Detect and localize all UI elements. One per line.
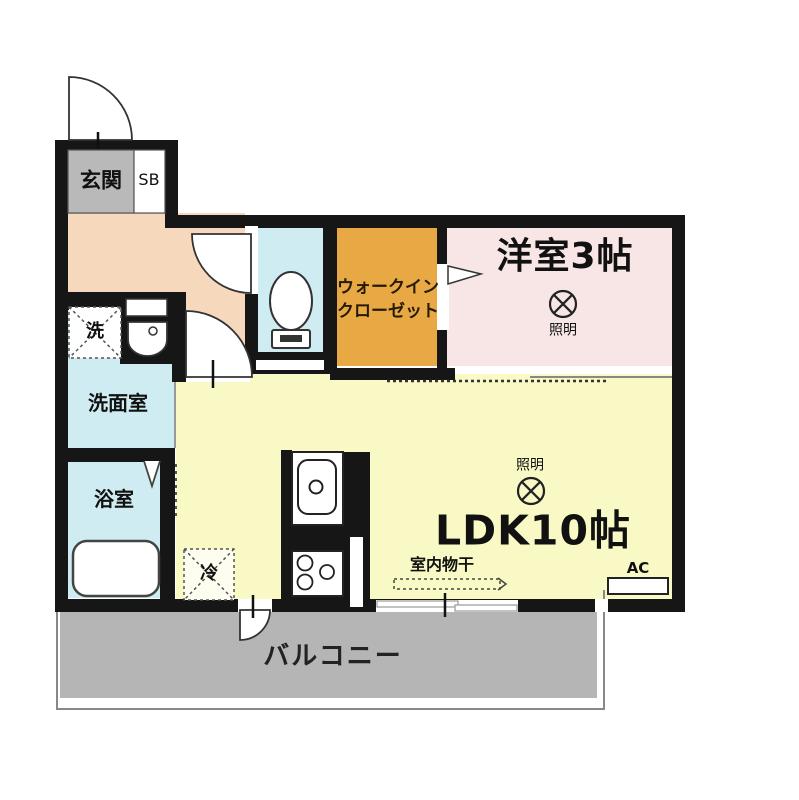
drying-label: 室内物干 — [410, 556, 474, 574]
bathtub — [73, 541, 159, 596]
genkan-label: 玄関 — [80, 169, 122, 192]
ac-unit — [608, 578, 668, 594]
floor-plan: 玄関 SB ウォークイン クローゼット 洋室3帖 照明 洗 洗面室 浴室 冷 照… — [0, 0, 799, 800]
toilet-bowl — [270, 272, 312, 330]
toilet-step-slot — [256, 360, 324, 370]
balcony-label: バルコニー — [263, 643, 402, 672]
wall-hall-washroom — [172, 310, 186, 382]
wall-right — [672, 215, 685, 612]
entrance-door-swing — [69, 77, 132, 140]
closet-label-line1: ウォークイン — [337, 279, 439, 298]
toilet-tank-slot — [280, 335, 302, 342]
kitchen-faucet — [310, 481, 323, 494]
wall-kitchen-left — [281, 450, 292, 598]
western-room-light-label: 照明 — [549, 323, 577, 338]
western-room-label: 洋室3帖 — [496, 237, 633, 277]
wall-closet-bottom — [330, 368, 455, 380]
wall-entrance-right — [165, 140, 178, 220]
vanity-counter — [126, 299, 167, 316]
balcony-edge-gap — [595, 599, 608, 612]
wall-toilet-right — [323, 225, 337, 370]
stove-burner-1 — [298, 556, 313, 571]
washroom-label: 洗面室 — [88, 392, 148, 414]
ac-label: AC — [627, 560, 650, 577]
bathroom-label: 浴室 — [94, 488, 134, 510]
stove-burner-3 — [320, 565, 334, 579]
closet-floor — [330, 223, 447, 373]
ldk-light-label: 照明 — [516, 458, 544, 473]
shoe-box-label: SB — [138, 171, 159, 189]
closet-label-line2: クローゼット — [337, 303, 439, 322]
wall-bathroom-right — [160, 448, 175, 612]
vanity-basin — [128, 322, 167, 356]
wall-entrance-top — [55, 140, 178, 150]
ldk-label: LDK10帖 — [435, 508, 631, 553]
washer-label: 洗 — [86, 322, 104, 342]
kitchen-slot — [350, 537, 363, 607]
wall-left — [55, 140, 68, 612]
wall-top — [165, 215, 685, 228]
fridge-label: 冷 — [200, 564, 218, 584]
stove-burner-2 — [298, 575, 313, 590]
kitchen-counter-mid — [292, 523, 343, 553]
window-sash-right — [455, 605, 517, 611]
wall-bathroom-top — [55, 448, 175, 462]
vanity-faucet — [149, 327, 157, 335]
